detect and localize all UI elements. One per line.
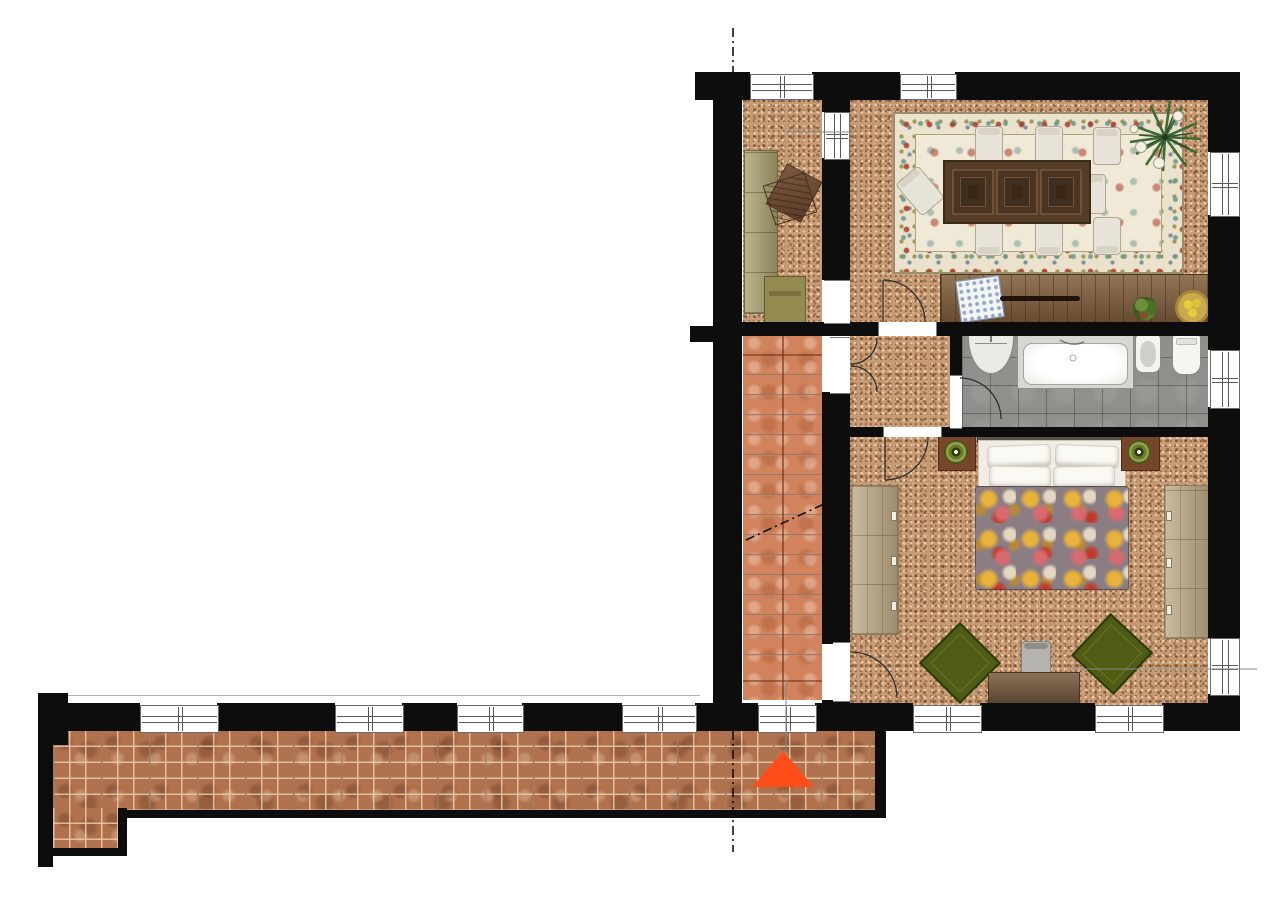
door-opening [833,642,850,702]
wall-segment [402,703,457,731]
drawer-pull [1000,296,1080,301]
balcony-edge-line [38,695,700,696]
dining-chair [975,126,1003,164]
window [1210,152,1240,217]
wall-segment [950,335,962,375]
floral-duvet [975,486,1129,590]
window [140,705,219,733]
window [900,74,957,100]
dining-chair [1093,127,1121,165]
wall-segment [940,427,1208,437]
wall-segment [822,392,850,644]
dining-table [943,160,1091,224]
wall-segment [713,100,742,703]
wall-segment [1208,215,1240,350]
table-lamp [944,440,968,464]
door-opening [950,375,962,429]
fruit-bowl [1175,290,1210,325]
wardrobe [851,485,899,635]
wall-segment [955,72,1240,100]
door-opening [824,280,850,324]
window [750,74,814,100]
wall-segment [690,326,715,342]
floor-plan [0,0,1280,905]
wall-segment [1208,407,1240,638]
room-staircase [743,336,822,700]
wall-segment [68,703,140,731]
wall-segment [695,703,758,731]
decorative-tray [955,275,1004,323]
balcony-extension [53,808,120,850]
small-plant [1133,297,1157,320]
window [913,705,982,733]
wall-segment [850,427,883,437]
wardrobe-handle [891,556,897,566]
desk-chair [1021,641,1051,675]
bathtub-basin [1023,343,1128,385]
wall-segment [1208,72,1240,152]
wall-segment [875,723,886,817]
stair-joint-line [782,336,784,700]
wall-segment [38,693,68,745]
bidet [1135,334,1161,373]
window [1095,705,1164,733]
wardrobe-handle [891,601,897,611]
wardrobe [1164,485,1212,639]
interior-window [824,112,850,160]
wall-segment [118,808,127,852]
window [622,705,697,733]
dining-chair [1093,217,1121,255]
table-inlay-panel [996,169,1038,215]
wall-segment [695,72,750,100]
wall-segment [815,703,913,731]
window [457,705,524,733]
wall-segment [822,97,850,112]
wall-segment [217,703,335,731]
wall-segment [980,703,1095,731]
dining-chair [1035,126,1063,164]
stair-joint-line [743,354,822,356]
entrance-direction-marker [752,751,814,787]
toilet [1172,334,1201,375]
room-inner-hallway [850,335,950,427]
wardrobe-handle [1166,605,1172,615]
window [335,705,404,733]
door-opening [878,322,937,336]
hall-bench [764,276,806,324]
wall-segment [522,703,622,731]
bathtub [1017,333,1134,389]
wall-segment [713,322,878,336]
wardrobe-handle [1166,558,1172,568]
wall-segment [120,810,886,818]
wardrobe-handle [891,511,897,521]
wall-segment [935,322,1208,336]
desk [988,672,1080,705]
window [1210,350,1240,409]
door-opening [883,427,942,437]
table-inlay-panel [952,169,994,215]
table-lamp [1127,440,1151,464]
wall-segment [822,158,850,280]
table-inlay-panel [1040,169,1082,215]
wall-segment [48,848,127,856]
wall-segment [812,72,900,100]
window [1210,638,1240,696]
wardrobe-handle [1166,511,1172,521]
double-door-opening [830,337,850,394]
wall-segment [1162,703,1240,731]
stair-joint-line [743,680,822,682]
french-door [758,705,817,733]
